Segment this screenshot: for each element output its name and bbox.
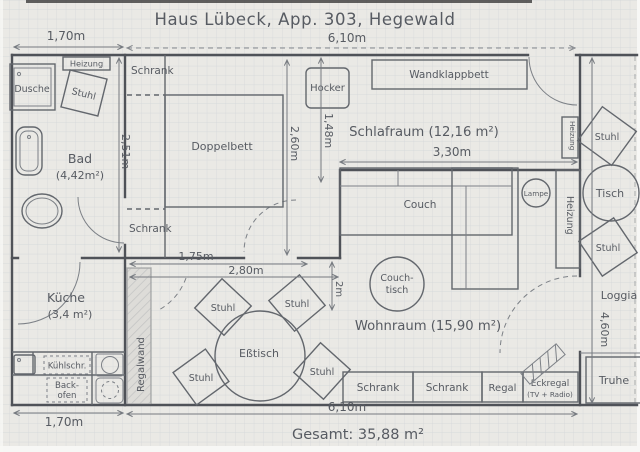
lamp-label: Lampe bbox=[524, 189, 549, 198]
chest-label: Truhe bbox=[598, 374, 630, 387]
dining-chair-4-label: Stuhl bbox=[310, 367, 334, 378]
dim-loggia-height: 4,60m bbox=[598, 312, 611, 347]
coffee-table-label-2: tisch bbox=[386, 285, 409, 296]
shelf-label: Regal bbox=[489, 383, 517, 394]
loggia-label: Loggia bbox=[601, 289, 637, 302]
radiator-label: Heizung bbox=[70, 59, 103, 69]
shower-label: Dusche bbox=[14, 84, 50, 95]
scan-bottom-margin bbox=[0, 446, 640, 452]
living-room-label: Wohnraum (15,90 m²) bbox=[355, 319, 501, 334]
kitchen-area-label: (3,4 m²) bbox=[48, 308, 93, 321]
dining-chair-3-label: Stuhl bbox=[189, 373, 213, 384]
kitchen-room-label: Küche bbox=[47, 290, 85, 305]
loggia-table-label: Tisch bbox=[595, 187, 624, 200]
loggia-chair-2-label: Stuhl bbox=[596, 243, 620, 254]
radiator-tall-label: Heizung bbox=[564, 196, 575, 235]
dim-hocker-depth: 1,48m bbox=[322, 113, 335, 148]
dining-table-label: Eßtisch bbox=[239, 347, 279, 360]
dim-bath-width: 1,70m bbox=[47, 29, 85, 43]
dining-chair-1-label: Stuhl bbox=[211, 303, 235, 314]
corner-shelf-label-1: Eckregal bbox=[531, 379, 570, 389]
double-bed-label: Doppelbett bbox=[191, 140, 253, 153]
bath-room-label: Bad bbox=[68, 151, 92, 166]
dim-schlafraum-width: 3,30m bbox=[433, 145, 471, 159]
shelf-wall-label: Regalwand bbox=[136, 337, 147, 392]
stool-label: Hocker bbox=[310, 83, 346, 94]
floor-plan-svg: Haus Lübeck, App. 303, Hegewald Heizung … bbox=[0, 0, 640, 452]
cabinet-1-label: Schrank bbox=[357, 382, 400, 394]
dim-dining-1: 1,75m bbox=[178, 250, 213, 263]
dining-chair-2-label: Stuhl bbox=[285, 299, 309, 310]
dim-bath-height: 2,51m bbox=[119, 134, 132, 169]
scanned-floor-plan: Haus Lübeck, App. 303, Hegewald Heizung … bbox=[0, 0, 640, 452]
radiator-small-label: Heizung bbox=[568, 121, 577, 150]
cabinet-2-label: Schrank bbox=[426, 382, 469, 394]
scan-left-margin bbox=[0, 0, 3, 452]
dim-main-width-top: 6,10m bbox=[328, 31, 366, 45]
fridge-label: Kühlschr. bbox=[48, 362, 87, 372]
oven-label-1: Back- bbox=[55, 381, 79, 391]
wall-bed-label: Wandklappbett bbox=[409, 69, 489, 81]
total-area-label: Gesamt: 35,88 m² bbox=[292, 427, 424, 443]
wardrobe-top-label: Schrank bbox=[131, 65, 174, 77]
plan-title: Haus Lübeck, App. 303, Hegewald bbox=[154, 10, 455, 29]
dim-couch-depth: 2m bbox=[333, 281, 344, 297]
loggia-chair-1-label: Stuhl bbox=[595, 132, 619, 143]
dim-main-width-bottom: 6,10m bbox=[328, 400, 366, 414]
dim-bed-depth: 2,60m bbox=[288, 126, 301, 161]
coffee-table-label-1: Couch- bbox=[380, 273, 413, 284]
oven-label-2: ofen bbox=[57, 391, 76, 401]
dim-dining-2: 2,80m bbox=[228, 264, 263, 277]
wardrobe-bottom-label: Schrank bbox=[129, 223, 172, 235]
bedroom-label: Schlafraum (12,16 m²) bbox=[349, 125, 499, 140]
dim-kitchen-width-bottom: 1,70m bbox=[45, 415, 83, 429]
corner-shelf-label-2: (TV + Radio) bbox=[527, 390, 573, 399]
scan-top-edge bbox=[26, 0, 532, 3]
bath-area-label: (4,42m²) bbox=[56, 169, 104, 182]
couch-label: Couch bbox=[404, 199, 437, 211]
